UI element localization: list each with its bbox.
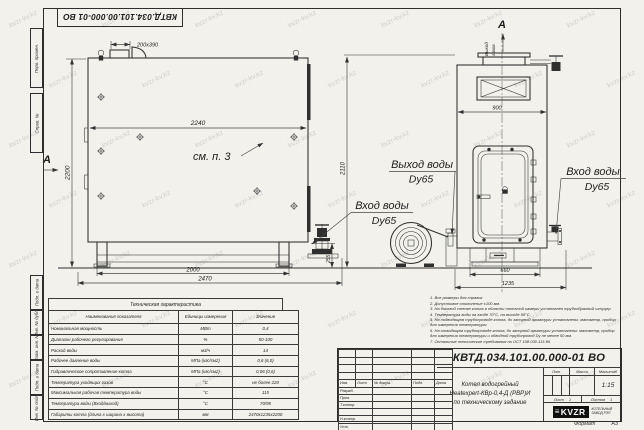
note-item: 5. На подводящем трубопроводе котла, до … bbox=[430, 317, 620, 327]
water-inlet-nozzle bbox=[547, 226, 562, 245]
dim-side-total: 1235 bbox=[502, 281, 515, 287]
table-row: Гидравлическое сопротивление котлаМПа (к… bbox=[49, 366, 299, 377]
gas-outlet-label-2: газов bbox=[491, 44, 496, 56]
title-block: Изм.Лист№ докум.Подп.Дата Разраб. Пров. … bbox=[337, 348, 622, 422]
dim-side-height: 2110 bbox=[341, 161, 347, 176]
lit-cell bbox=[553, 376, 562, 396]
mass-label: Масса bbox=[570, 368, 595, 376]
lit-cell bbox=[562, 376, 570, 396]
fitting-mark bbox=[97, 147, 105, 155]
side-view bbox=[457, 33, 563, 292]
drawing-sheet: kvzr-kv.kzkvzr-kv.kzkvzr-kv.kzkvzr-kv.kz… bbox=[0, 0, 644, 430]
role-label: Пров. bbox=[339, 394, 373, 401]
lifting-eye bbox=[98, 50, 104, 60]
tech-col-name: Наименования показателя bbox=[49, 311, 179, 324]
see-note-label: см. п. 3 bbox=[193, 151, 231, 163]
tech-col-value: Значение bbox=[233, 311, 299, 324]
table-row: Температура воды (Вход/выход)°С70/95 bbox=[49, 398, 299, 409]
role-label: Т.контр. bbox=[339, 401, 373, 408]
table-row: Габариты котла (длина х ширина х высота)… bbox=[49, 409, 299, 420]
role-label: Н.контр. bbox=[339, 416, 373, 423]
role-label: Разраб. bbox=[339, 387, 373, 394]
scale-value: 1:15 bbox=[595, 376, 621, 396]
format-label: Формат bbox=[574, 421, 595, 427]
product-name-line1: Котел водогрейный bbox=[461, 381, 518, 390]
flue-collar bbox=[483, 57, 525, 65]
note-item: 2. Допустимое отклонение ±100 мм. bbox=[430, 301, 620, 306]
gas-outlet-label-1: Выход bbox=[484, 42, 489, 56]
section-letter-top: А bbox=[497, 19, 506, 31]
role-label bbox=[339, 409, 373, 416]
dim-front-base: 2000 bbox=[185, 268, 200, 274]
format-value: А3 bbox=[611, 421, 618, 427]
dim-front-top: 200x390 bbox=[136, 43, 159, 49]
product-name: Котел водогрейный Heatexpert-КВр-0,4-Д (… bbox=[437, 368, 544, 421]
fitting-mark bbox=[290, 202, 298, 210]
furnace-door bbox=[473, 146, 536, 243]
tech-table-title: Техническая характеристика bbox=[48, 298, 283, 310]
table-row: Рабочее давление водыМПа (кгс/см2)0,6 (6… bbox=[49, 356, 299, 367]
side-hinge-strip bbox=[307, 64, 311, 120]
company-name: КОТЕЛЬНЫЙ ЗАВОД РЭП bbox=[592, 408, 613, 416]
lock-icon bbox=[502, 187, 507, 194]
dim-front-inner-width: 2240 bbox=[190, 120, 206, 127]
inlet-valve-assembly bbox=[308, 224, 338, 258]
dim-front-height: 2200 bbox=[65, 165, 72, 181]
fitting-mark bbox=[253, 187, 261, 195]
dim-front-total: 2470 bbox=[197, 277, 212, 283]
tech-characteristics-table: Техническая характеристика Наименования … bbox=[48, 298, 283, 420]
role-label: Утв. bbox=[339, 423, 373, 430]
sheets-cell: Листов 1 bbox=[582, 396, 621, 403]
water-inlet-label-front: Вход воды Dy65 bbox=[312, 200, 413, 244]
doc-number: КВТД.034.101.00.000-01 ВО bbox=[437, 349, 621, 368]
svg-text:Вход воды: Вход воды bbox=[566, 166, 619, 178]
table-row: Максимальная рабочая температура воды°С1… bbox=[49, 388, 299, 399]
note-item: 7. Остальные технические требования по О… bbox=[430, 339, 620, 344]
mass-cell bbox=[570, 376, 595, 396]
lifting-eye bbox=[293, 50, 299, 60]
svg-text:Вход воды: Вход воды bbox=[355, 200, 408, 212]
sheet-cell: Лист 1 bbox=[544, 396, 582, 403]
table-row: Номинальная мощностьМВт0,4 bbox=[49, 324, 299, 335]
product-name-line2: Heatexpert-КВр-0,4-Д (РВР)И bbox=[450, 390, 531, 399]
svg-text:Dy65: Dy65 bbox=[585, 181, 610, 193]
dim-side-base: 660 bbox=[500, 268, 510, 274]
note-item: 1. Все размеры для справок bbox=[430, 295, 620, 300]
explosion-panel bbox=[477, 77, 530, 100]
water-inlet-label-side: Вход воды Dy65 bbox=[556, 166, 626, 234]
format-strip: Формат А3 bbox=[500, 421, 618, 427]
fitting-mark bbox=[290, 133, 298, 141]
water-outlet-nozzle bbox=[446, 229, 455, 246]
tech-col-unit: Единицы измерения bbox=[179, 311, 233, 324]
chimney-collar bbox=[110, 47, 146, 58]
water-outlet-label: Выход воды Dy65 bbox=[389, 159, 456, 234]
note-item: 4. Температура воды на входе 70°С, на вы… bbox=[430, 312, 620, 317]
logo-bars-icon: ≡ bbox=[555, 408, 560, 416]
svg-text:Dy65: Dy65 bbox=[409, 174, 434, 186]
see-note-leader bbox=[241, 143, 263, 156]
company-cell: ≡ KVZR КОТЕЛЬНЫЙ ЗАВОД РЭП bbox=[544, 403, 621, 421]
side-hinge-strip bbox=[307, 186, 311, 232]
lit-label: Лит. bbox=[544, 368, 570, 376]
product-name-line3: по техническому задание bbox=[454, 399, 527, 408]
dim-front-base-h: 255 bbox=[326, 254, 332, 264]
technical-notes: 1. Все размеры для справок 2. Допустимое… bbox=[430, 295, 620, 344]
title-block-signature-grid: Изм.Лист№ докум.Подп.Дата Разраб. Пров. … bbox=[338, 349, 453, 430]
scale-label: Масштаб bbox=[595, 368, 621, 376]
table-row: Температура уходящих газов°Сне более 220 bbox=[49, 377, 299, 388]
note-item: 3. На боковой стенке котла в области топ… bbox=[430, 306, 620, 311]
fitting-mark bbox=[97, 93, 105, 101]
table-row: Расход водым3/ч14 bbox=[49, 345, 299, 356]
dim-side-width: 900 bbox=[492, 106, 502, 112]
lit-cell bbox=[544, 376, 553, 396]
kvzr-logo: ≡ KVZR bbox=[553, 406, 589, 419]
side-base bbox=[470, 248, 540, 266]
fitting-mark bbox=[136, 133, 144, 141]
svg-text:Выход воды: Выход воды bbox=[391, 159, 453, 171]
section-letter-left: А bbox=[42, 154, 51, 166]
note-item: 6. На отводящем трубопроводе котла, до з… bbox=[430, 328, 620, 338]
table-row: Диапазон рабочего регулирования%50-100 bbox=[49, 334, 299, 345]
svg-text:Dy65: Dy65 bbox=[372, 215, 397, 227]
fitting-mark bbox=[97, 192, 105, 200]
